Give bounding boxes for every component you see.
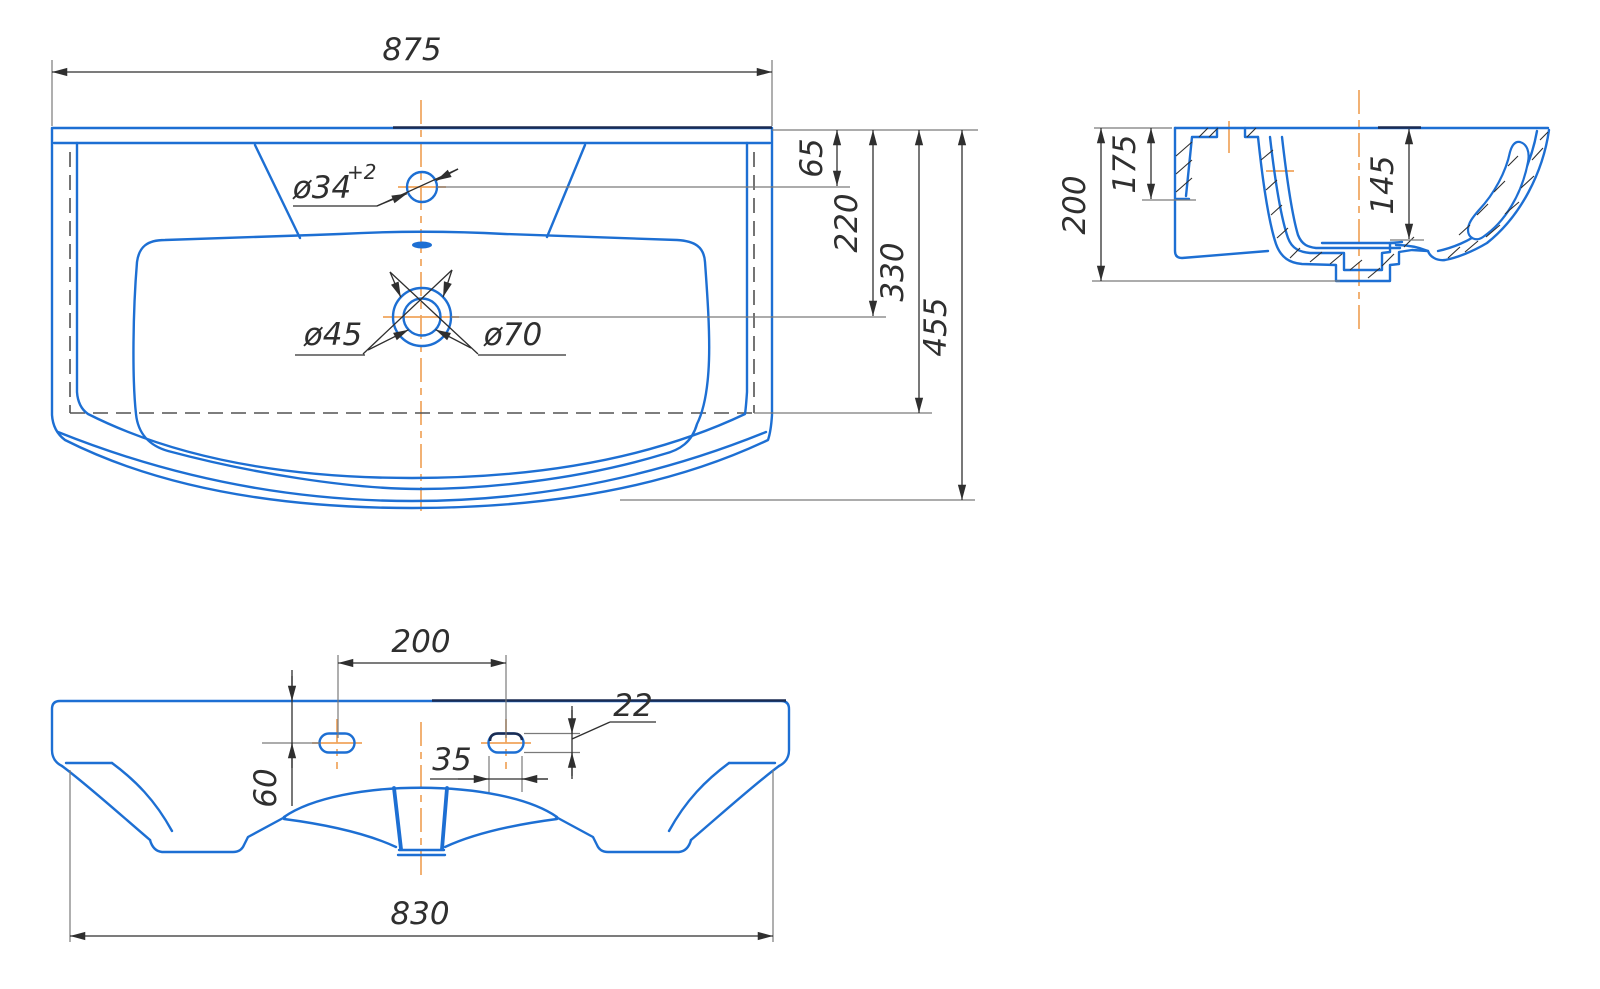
dim-overall-depth-label: 455 (918, 297, 954, 356)
dim-bowl-depth-label: 145 (1365, 155, 1401, 214)
dim-overall-width-label: 875 (382, 32, 441, 68)
section-rim-cavity-slot (1468, 142, 1529, 239)
section-view: 200 175 145 (1057, 90, 1549, 332)
hidden-outline (70, 152, 754, 413)
faucet-leader-arrow2 (436, 169, 458, 181)
dim-hole-spacing-label: 200 (391, 624, 450, 660)
front-view: 200 22 35 60 830 (52, 624, 789, 942)
technical-drawing-canvas: 875 65 220 330 455 ø34 +2 ø45 ø70 (0, 0, 1600, 989)
sink-dimension-drawing: 875 65 220 330 455 ø34 +2 ø45 ø70 (0, 0, 1600, 989)
dim-overall-height-label: 200 (1057, 175, 1093, 234)
dim-mounting-width-label: 830 (390, 896, 449, 932)
dim-drain-inner-label: ø45 (303, 317, 362, 353)
top-view: 875 65 220 330 455 ø34 +2 ø45 ø70 (52, 32, 978, 512)
dim-faucet-dia-label: ø34 (292, 170, 351, 206)
extension-lines (52, 60, 978, 500)
drain-70-arrow2 (390, 272, 401, 297)
section-back-wall (1175, 128, 1268, 258)
dim-hole-width-label: 35 (432, 742, 471, 778)
sink-inner-offset (77, 143, 747, 478)
dim-rear-height-label: 175 (1107, 134, 1143, 193)
dim-hole-height-label: 22 (613, 688, 652, 724)
dim-drain-depth-label: 220 (829, 193, 865, 252)
sink-front-apron-line (58, 432, 766, 501)
backsplash-slant-right (547, 145, 585, 237)
dim-faucet-depth-label: 65 (794, 138, 830, 177)
overflow-slot (412, 242, 432, 249)
dim-drain-outer-label: ø70 (483, 317, 542, 353)
dim-bowl-rear-depth-label: 330 (875, 242, 911, 301)
faucet-leader-arrow1 (377, 194, 407, 206)
dim-faucet-tol-label: +2 (347, 160, 376, 184)
dim-hole-offset-label: 60 (248, 768, 284, 807)
sink-outer-outline (52, 128, 772, 508)
